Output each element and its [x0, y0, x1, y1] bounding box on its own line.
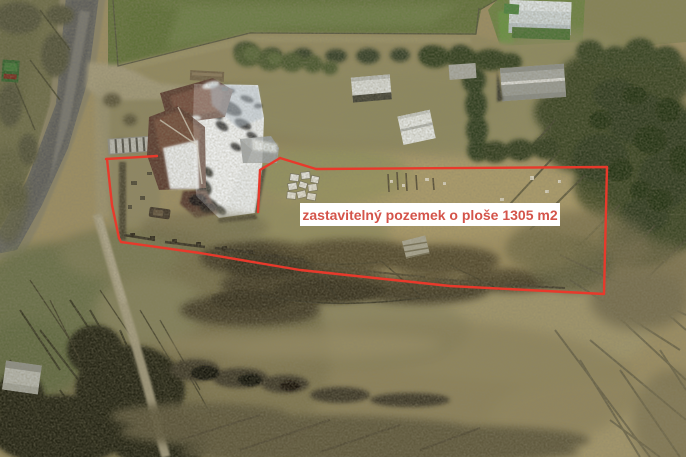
svg-text:zastavitelný pozemek o ploše 1: zastavitelný pozemek o ploše 1305 m2: [302, 207, 557, 223]
